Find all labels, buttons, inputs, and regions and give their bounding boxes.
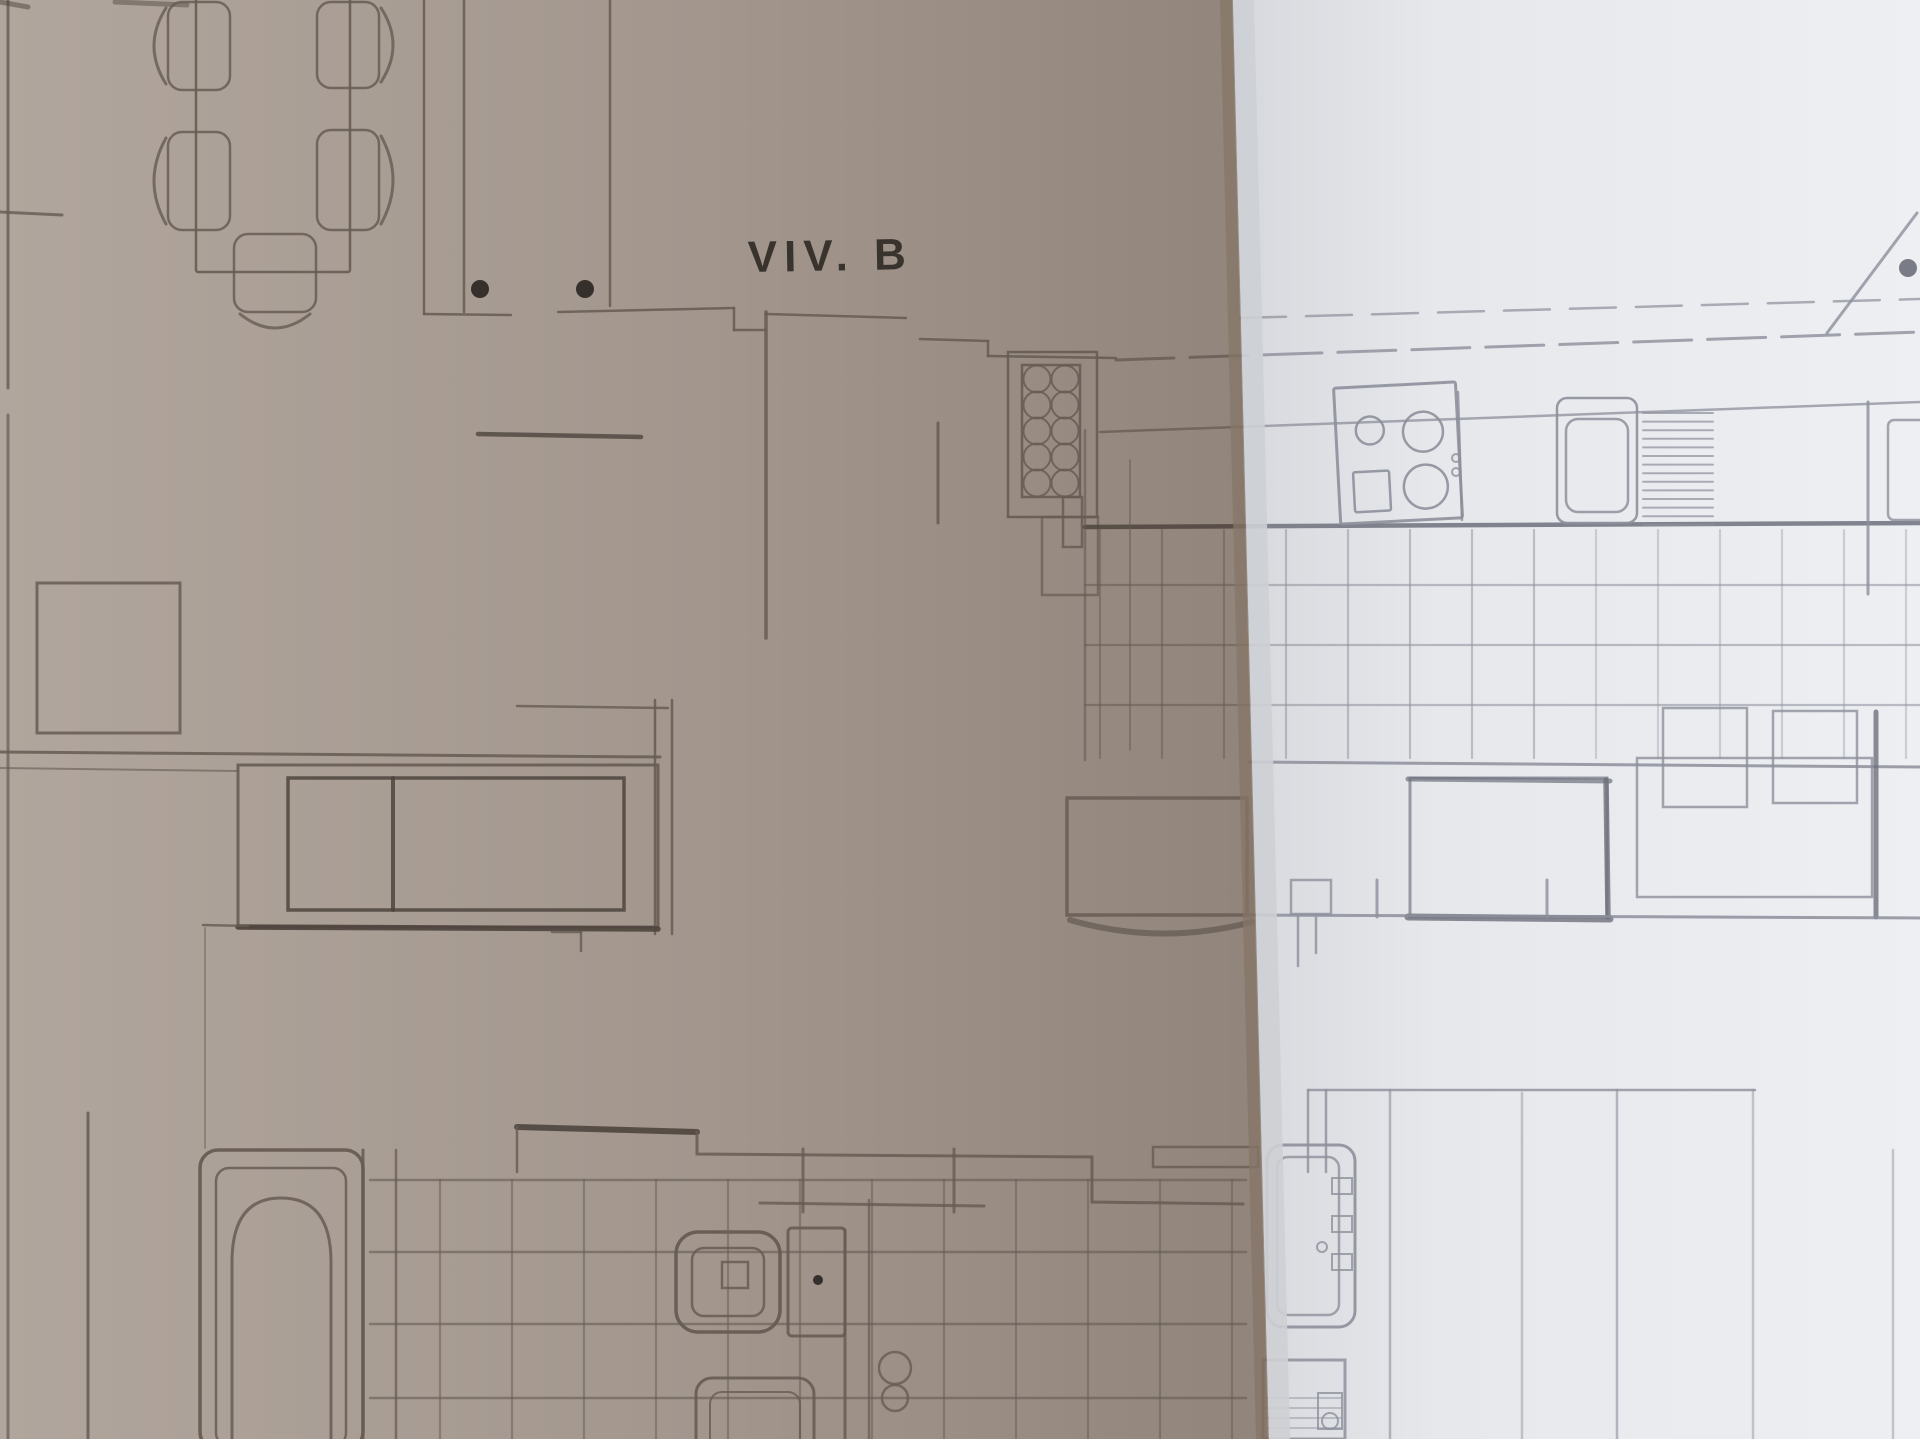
- floor-plan-photo: VIV. B: [0, 0, 1920, 1439]
- unit-label: VIV. B: [747, 230, 913, 282]
- wall-beam: [478, 434, 641, 437]
- table-shadow-edge: [1606, 780, 1608, 917]
- hinge-dot: [576, 280, 594, 298]
- wall: [424, 314, 511, 315]
- floor-plan-drawing: VIV. B: [0, 0, 1920, 1439]
- table-shadow-edge: [1408, 779, 1610, 781]
- cistern-button: [813, 1275, 823, 1285]
- paper-bright-surface: [1180, 0, 1920, 1439]
- sofa-front-heavy: [238, 927, 658, 929]
- hinge-dot: [471, 280, 489, 298]
- corner-ink-mark: [1899, 259, 1917, 277]
- bath-wall: [203, 925, 248, 926]
